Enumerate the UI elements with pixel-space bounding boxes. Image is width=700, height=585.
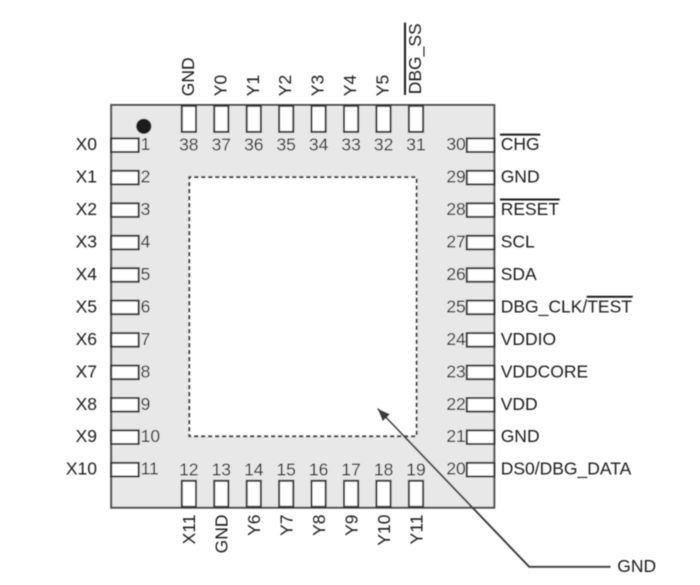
svg-text:7: 7 bbox=[141, 329, 151, 349]
svg-text:X6: X6 bbox=[76, 329, 97, 349]
svg-text:14: 14 bbox=[244, 460, 264, 480]
svg-text:31: 31 bbox=[406, 135, 425, 155]
svg-text:VDDCORE: VDDCORE bbox=[501, 361, 589, 381]
svg-text:X8: X8 bbox=[76, 394, 97, 414]
svg-text:Y1: Y1 bbox=[243, 75, 263, 96]
svg-text:33: 33 bbox=[341, 135, 360, 155]
svg-text:Y0: Y0 bbox=[210, 75, 230, 97]
svg-text:Y7: Y7 bbox=[277, 515, 297, 536]
svg-text:23: 23 bbox=[446, 361, 465, 381]
svg-text:34: 34 bbox=[309, 135, 329, 155]
svg-text:GND: GND bbox=[501, 167, 540, 187]
svg-text:Y6: Y6 bbox=[244, 515, 264, 536]
svg-text:1: 1 bbox=[141, 134, 151, 154]
svg-text:GND: GND bbox=[178, 57, 198, 96]
svg-text:X10: X10 bbox=[66, 459, 97, 479]
svg-text:11: 11 bbox=[141, 459, 159, 479]
svg-text:18: 18 bbox=[374, 460, 393, 480]
svg-text:4: 4 bbox=[141, 232, 151, 252]
svg-text:9: 9 bbox=[141, 394, 151, 414]
svg-text:Y4: Y4 bbox=[340, 75, 360, 97]
svg-text:X11: X11 bbox=[179, 515, 199, 545]
svg-text:SDA: SDA bbox=[501, 264, 537, 284]
svg-text:15: 15 bbox=[276, 460, 295, 480]
svg-text:X2: X2 bbox=[76, 199, 97, 219]
svg-text:20: 20 bbox=[446, 459, 466, 479]
svg-text:GND: GND bbox=[212, 515, 232, 554]
svg-text:RESET: RESET bbox=[501, 199, 560, 219]
svg-text:VDD: VDD bbox=[501, 394, 538, 414]
svg-text:37: 37 bbox=[212, 135, 231, 155]
svg-text:X3: X3 bbox=[76, 232, 97, 252]
svg-text:Y11: Y11 bbox=[406, 515, 426, 545]
svg-text:CHG: CHG bbox=[501, 134, 540, 154]
svg-text:26: 26 bbox=[446, 264, 465, 284]
svg-text:8: 8 bbox=[141, 361, 151, 381]
svg-text:X1: X1 bbox=[76, 167, 97, 187]
svg-text:16: 16 bbox=[309, 460, 328, 480]
svg-text:GND: GND bbox=[617, 556, 656, 576]
svg-text:GND: GND bbox=[501, 426, 540, 446]
svg-text:28: 28 bbox=[446, 199, 465, 219]
svg-text:Y5: Y5 bbox=[373, 75, 393, 96]
svg-text:DBG_CLK/TEST: DBG_CLK/TEST bbox=[501, 296, 633, 317]
svg-text:30: 30 bbox=[446, 134, 466, 154]
svg-text:SCL: SCL bbox=[501, 232, 535, 252]
svg-text:X4: X4 bbox=[76, 264, 98, 284]
svg-text:6: 6 bbox=[141, 296, 151, 316]
svg-text:VDDIO: VDDIO bbox=[501, 329, 556, 349]
svg-text:13: 13 bbox=[212, 460, 231, 480]
svg-text:25: 25 bbox=[446, 296, 465, 316]
svg-text:Y3: Y3 bbox=[308, 75, 328, 96]
svg-text:Y2: Y2 bbox=[275, 75, 295, 96]
svg-text:10: 10 bbox=[141, 426, 161, 446]
svg-text:29: 29 bbox=[446, 167, 465, 187]
svg-text:X7: X7 bbox=[76, 361, 97, 381]
svg-text:DBG_SS: DBG_SS bbox=[405, 23, 426, 94]
svg-text:5: 5 bbox=[141, 264, 151, 284]
svg-text:Y10: Y10 bbox=[374, 514, 394, 545]
svg-text:27: 27 bbox=[446, 232, 465, 252]
svg-text:X9: X9 bbox=[76, 426, 97, 446]
svg-text:32: 32 bbox=[374, 135, 393, 155]
svg-text:DS0/DBG_DATA: DS0/DBG_DATA bbox=[501, 459, 632, 480]
svg-text:35: 35 bbox=[276, 135, 295, 155]
svg-text:X5: X5 bbox=[76, 296, 97, 316]
svg-text:21: 21 bbox=[446, 426, 465, 446]
svg-text:24: 24 bbox=[446, 329, 466, 349]
svg-text:Y9: Y9 bbox=[341, 515, 361, 536]
svg-text:12: 12 bbox=[179, 460, 198, 480]
svg-text:22: 22 bbox=[446, 394, 465, 414]
svg-text:17: 17 bbox=[341, 460, 360, 480]
svg-text:Y8: Y8 bbox=[309, 515, 329, 536]
svg-text:36: 36 bbox=[244, 135, 263, 155]
svg-text:3: 3 bbox=[141, 199, 151, 219]
svg-text:2: 2 bbox=[141, 167, 151, 187]
svg-text:19: 19 bbox=[406, 460, 425, 480]
svg-text:38: 38 bbox=[179, 135, 198, 155]
svg-text:X0: X0 bbox=[76, 134, 98, 154]
